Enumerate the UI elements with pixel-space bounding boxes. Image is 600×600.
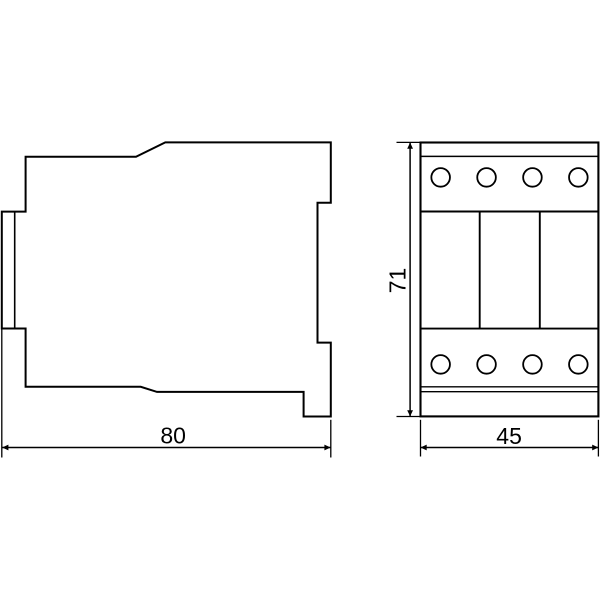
svg-text:80: 80	[160, 423, 186, 449]
svg-text:71: 71	[385, 268, 411, 294]
svg-text:45: 45	[496, 423, 522, 449]
